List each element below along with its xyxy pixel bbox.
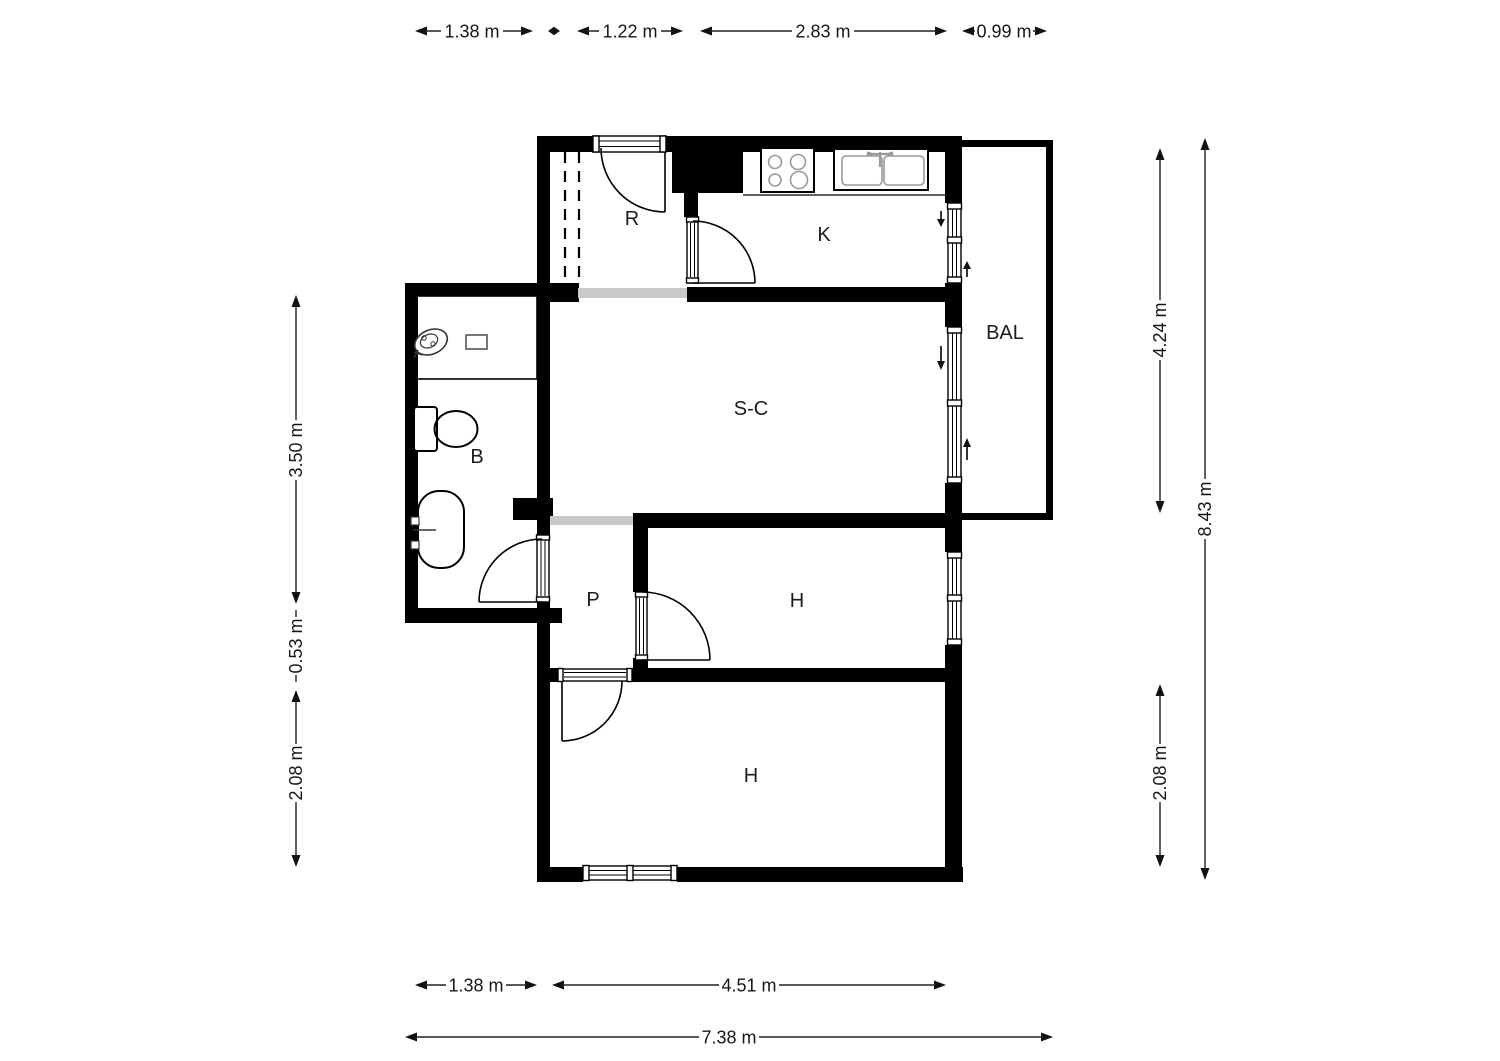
door-arc <box>562 681 622 741</box>
dimensions-bottom: 1.38 m 4.51 m 7.38 m <box>405 976 1053 1048</box>
svg-text:0.99 m: 0.99 m <box>976 22 1031 42</box>
svg-text:2.83 m: 2.83 m <box>795 22 850 42</box>
dimensions-right: 4.24 m 8.43 m 2.08 m <box>1150 138 1215 880</box>
dim-left-1: 3.50 m <box>286 295 306 604</box>
dim-left-2: 0.53 m <box>286 610 306 682</box>
door-arc <box>642 592 710 660</box>
svg-text:1.38 m: 1.38 m <box>444 22 499 42</box>
svg-text:4.24 m: 4.24 m <box>1150 302 1170 357</box>
dimensions-left: 3.50 m 0.53 m 2.08 m <box>286 295 306 867</box>
wardrobe-dashed-icon <box>565 152 579 283</box>
dim-right-3: 2.08 m <box>1150 684 1170 867</box>
dim-right-1: 4.24 m <box>1150 148 1170 513</box>
svg-text:8.43 m: 8.43 m <box>1195 481 1215 536</box>
svg-text:1.38 m: 1.38 m <box>448 976 503 996</box>
entrance-door <box>593 136 666 212</box>
room-label-bal: BAL <box>986 322 1024 344</box>
passage-r-sc <box>578 288 687 298</box>
room-label-p: P <box>586 589 599 611</box>
door-arc <box>693 221 755 283</box>
shelf-icon <box>466 335 487 349</box>
window-glyph-kitchen <box>948 203 962 283</box>
svg-text:3.50 m: 3.50 m <box>286 422 306 477</box>
window-glyph-bottom <box>583 866 677 881</box>
dim-top-3: 2.83 m <box>700 22 947 42</box>
passage-openings <box>550 288 687 525</box>
svg-text:2.08 m: 2.08 m <box>286 745 306 800</box>
dim-top-4: 0.99 m <box>962 22 1047 42</box>
kitchen-fixtures <box>743 148 945 195</box>
room-label-k: K <box>817 224 831 246</box>
dim-divider-diamond <box>548 27 560 35</box>
bathroom-door <box>479 535 550 602</box>
dim-top-1: 1.38 m <box>415 22 533 42</box>
bedroom-door <box>636 592 711 660</box>
floorplan-drawing: R K BAL S-C B P H H 1.38 m 1.22 m 2.83 m <box>0 0 1500 1061</box>
stove-icon <box>761 148 814 192</box>
room-label-r: R <box>625 208 639 230</box>
svg-text:0.53 m: 0.53 m <box>286 618 306 673</box>
floorplan-page: R K BAL S-C B P H H 1.38 m 1.22 m 2.83 m <box>0 0 1500 1061</box>
door-arc <box>601 148 665 212</box>
bathtub-icon <box>411 491 464 568</box>
dim-right-2: 8.43 m <box>1195 138 1215 880</box>
tilt-arrow-up-icon <box>963 438 971 460</box>
svg-text:1.22 m: 1.22 m <box>602 22 657 42</box>
dim-bottom-2: 4.51 m <box>552 976 946 996</box>
tilt-arrow-up-icon <box>963 261 971 277</box>
tilt-arrow-down-icon <box>937 211 945 227</box>
kitchen-door <box>687 217 756 283</box>
tilt-arrow-down-icon <box>937 346 945 370</box>
dim-left-3: 2.08 m <box>286 690 306 867</box>
room-label-h1: H <box>790 590 804 612</box>
toilet-icon <box>414 407 478 451</box>
svg-text:2.08 m: 2.08 m <box>1150 745 1170 800</box>
bottom-bedroom-door <box>558 669 632 742</box>
outer-walls <box>405 136 963 882</box>
sink-icon <box>834 149 928 190</box>
doors <box>479 136 755 741</box>
svg-text:7.38 m: 7.38 m <box>701 1028 756 1048</box>
dim-bottom-1: 1.38 m <box>415 976 537 996</box>
door-arc <box>479 539 542 602</box>
dimensions-top: 1.38 m 1.22 m 2.83 m 0.99 m <box>415 22 1047 42</box>
room-label-b: B <box>470 446 483 468</box>
room-label-h2: H <box>744 765 758 787</box>
dim-top-2: 1.22 m <box>577 22 683 42</box>
dim-bottom-3: 7.38 m <box>405 1028 1053 1048</box>
bathroom-fixtures <box>411 296 537 568</box>
passage-sc-p <box>550 516 633 525</box>
room-label-sc: S-C <box>734 398 768 420</box>
svg-text:4.51 m: 4.51 m <box>721 976 776 996</box>
duct-block <box>672 152 743 193</box>
window-glyph-living <box>948 327 962 483</box>
window-glyph-bedroom <box>948 552 962 645</box>
